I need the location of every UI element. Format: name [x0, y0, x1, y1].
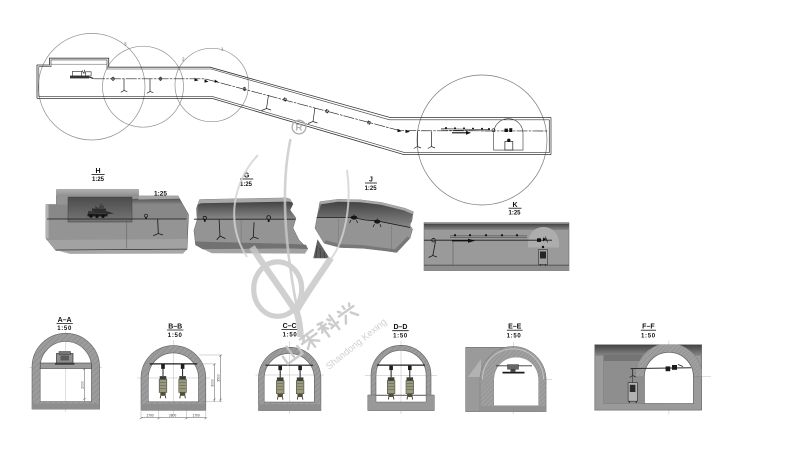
svg-text:H: H	[95, 168, 100, 175]
svg-text:1:25: 1:25	[365, 186, 378, 192]
svg-text:3000: 3000	[210, 379, 214, 387]
svg-text:2800: 2800	[169, 414, 176, 418]
svg-text:1:50: 1:50	[283, 332, 298, 338]
svg-text:1:50: 1:50	[641, 333, 656, 339]
svg-text:R: R	[296, 123, 303, 134]
svg-text:D–D: D–D	[393, 324, 407, 331]
svg-text:3: 3	[124, 42, 127, 47]
svg-text:1:25: 1:25	[240, 182, 253, 188]
svg-text:1:50: 1:50	[393, 333, 408, 339]
svg-text:A–A: A–A	[58, 317, 72, 324]
svg-text:1700: 1700	[193, 414, 200, 418]
svg-text:1:50: 1:50	[168, 333, 183, 339]
svg-text:E–E: E–E	[508, 324, 522, 331]
svg-text:B–B: B–B	[168, 324, 182, 331]
svg-text:1:50: 1:50	[57, 326, 72, 332]
svg-text:1700: 1700	[146, 414, 153, 418]
svg-text:1:50: 1:50	[507, 333, 522, 339]
svg-text:1: 1	[221, 47, 224, 52]
svg-text:1:25: 1:25	[92, 177, 105, 183]
svg-text:3500: 3500	[217, 374, 221, 382]
svg-text:1:25: 1:25	[508, 211, 521, 217]
svg-text:F–F: F–F	[642, 324, 655, 331]
svg-text:J: J	[369, 177, 373, 184]
svg-text:K: K	[512, 202, 517, 209]
svg-text:2000: 2000	[81, 381, 85, 389]
svg-text:C–C: C–C	[283, 323, 297, 330]
